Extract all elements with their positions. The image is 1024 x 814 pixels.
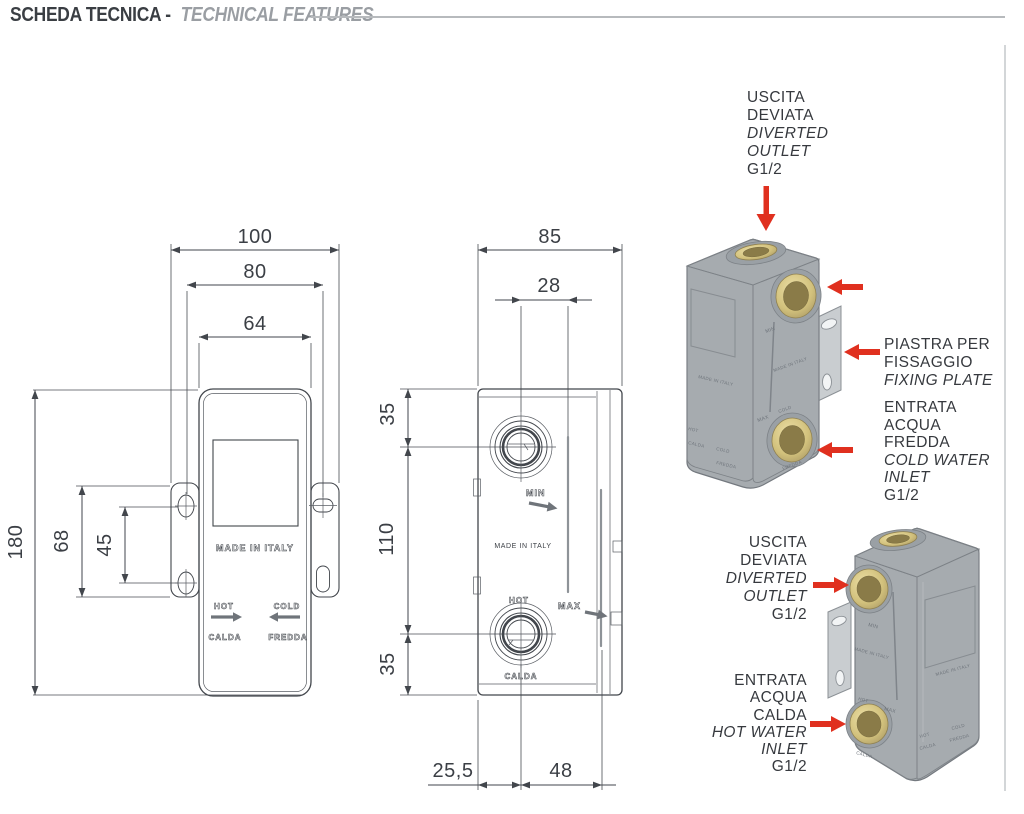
dim-front-outer-width: 100 <box>238 226 273 248</box>
callout-line: FISSAGGIO <box>884 354 993 372</box>
front-dimensions: 100 80 64 180 68 <box>5 226 339 695</box>
callout-line: G1/2 <box>747 161 828 179</box>
arrow-cold-inlet <box>817 442 853 458</box>
side-view: 85 28 35 110 35 <box>376 226 622 790</box>
callout-line: ACQUA <box>667 689 807 706</box>
arrow-fixing-plate <box>844 344 880 360</box>
callout-line: INLET <box>884 469 990 487</box>
callout-line: DIVERTED <box>747 125 828 143</box>
front-engraving-calda: CALDA <box>209 633 242 642</box>
callout-line: FREDDA <box>884 434 990 452</box>
callout-line: HOT WATER <box>667 724 807 741</box>
side-engraving-min: MIN <box>526 488 546 498</box>
callout-top-outlet: USCITA DEVIATA DIVERTED OUTLET G1/2 <box>747 89 828 179</box>
dim-side-bottom-left: 25,5 <box>433 760 474 782</box>
side-engraving-max: MAX <box>558 601 581 611</box>
render-top-fixing-plate <box>818 306 841 401</box>
callout-line: PIASTRA PER <box>884 336 993 354</box>
front-engraving-fredda: FREDDA <box>268 633 307 642</box>
front-view: 100 80 64 180 68 <box>5 226 339 696</box>
callout-line: FIXING PLATE <box>884 372 993 390</box>
dim-side-port-spacing: 110 <box>376 522 398 555</box>
callout-line: ENTRATA <box>884 399 990 417</box>
mounting-slot-bottom-right <box>317 566 330 592</box>
render-bottom: MIN MADE IN ITALY MAX HOT CALDA MADE IN … <box>810 527 979 781</box>
side-engraving-made-in-italy: MADE IN ITALY <box>494 543 551 550</box>
dim-front-hole-spacing-h: 80 <box>243 261 266 283</box>
front-engraving-cold: COLD <box>274 602 301 611</box>
dim-side-bottom-right: 48 <box>549 760 572 782</box>
callout-line: G1/2 <box>667 758 807 775</box>
callout-line: CALDA <box>667 707 807 724</box>
technical-drawing-canvas: 100 80 64 180 68 <box>0 0 1024 814</box>
front-body: MADE IN ITALY HOT CALDA COLD FREDDA <box>171 389 339 696</box>
arrow-top-outlet <box>757 186 776 231</box>
dim-front-body-width: 64 <box>243 313 266 335</box>
mounting-hole-top-left <box>175 492 197 520</box>
front-engraving-hot: HOT <box>214 602 234 611</box>
side-dimensions: 85 28 35 110 35 <box>376 226 622 790</box>
mounting-slot-top-right <box>309 493 337 518</box>
dim-side-top-to-port: 35 <box>377 402 399 425</box>
front-engraving-made-in-italy: MADE IN ITALY <box>216 543 294 553</box>
callout-line: COLD WATER <box>884 452 990 470</box>
callout-line: DEVIATA <box>747 107 828 125</box>
callout-line: ENTRATA <box>667 672 807 689</box>
side-engraving-calda: CALDA <box>505 672 538 681</box>
side-body: MIN MADE IN ITALY HOT MAX CALDA <box>474 389 623 695</box>
callout-line: OUTLET <box>747 143 828 161</box>
callout-line: G1/2 <box>667 606 807 624</box>
dim-front-body-height: 180 <box>5 525 27 560</box>
dim-front-plate-height: 68 <box>51 529 73 552</box>
callout-line: USCITA <box>747 89 828 107</box>
dim-side-depth: 85 <box>538 226 561 248</box>
callout-line: USCITA <box>667 534 807 552</box>
cold-arrow-icon <box>269 612 300 622</box>
dim-side-port-to-bottom: 35 <box>377 652 399 675</box>
technical-sheet-page: SCHEDA TECNICA - TECHNICAL FEATURES <box>0 0 1024 814</box>
dim-side-port-offset: 28 <box>537 275 560 297</box>
dim-front-hole-spacing-v: 45 <box>94 533 116 556</box>
hot-arrow-icon <box>211 612 242 622</box>
callout-line: G1/2 <box>884 487 990 505</box>
render-bottom-fixing-plate <box>828 602 851 698</box>
callout-line: INLET <box>667 741 807 758</box>
callout-fixing-plate: PIASTRA PER FISSAGGIO FIXING PLATE <box>884 336 993 390</box>
callout-line: DIVERTED <box>667 570 807 588</box>
callout-side-outlet: USCITA DEVIATA DIVERTED OUTLET G1/2 <box>667 534 807 624</box>
arrow-hot-inlet <box>810 716 846 732</box>
mounting-hole-bottom-left <box>175 569 197 597</box>
render-top: MIN MADE IN ITALY MAX COLD FREDDA MADE I… <box>687 186 880 488</box>
max-arrow-icon <box>584 607 608 621</box>
arrow-side-outlet <box>813 577 849 593</box>
arrow-upper-side-port <box>827 279 863 295</box>
callout-line: ACQUA <box>884 417 990 435</box>
min-arrow-icon <box>528 498 558 513</box>
side-engraving-hot: HOT <box>509 596 529 605</box>
callout-line: DEVIATA <box>667 552 807 570</box>
callout-cold-inlet: ENTRATA ACQUA FREDDA COLD WATER INLET G1… <box>884 399 990 504</box>
callout-line: OUTLET <box>667 588 807 606</box>
callout-hot-inlet: ENTRATA ACQUA CALDA HOT WATER INLET G1/2 <box>667 672 807 776</box>
